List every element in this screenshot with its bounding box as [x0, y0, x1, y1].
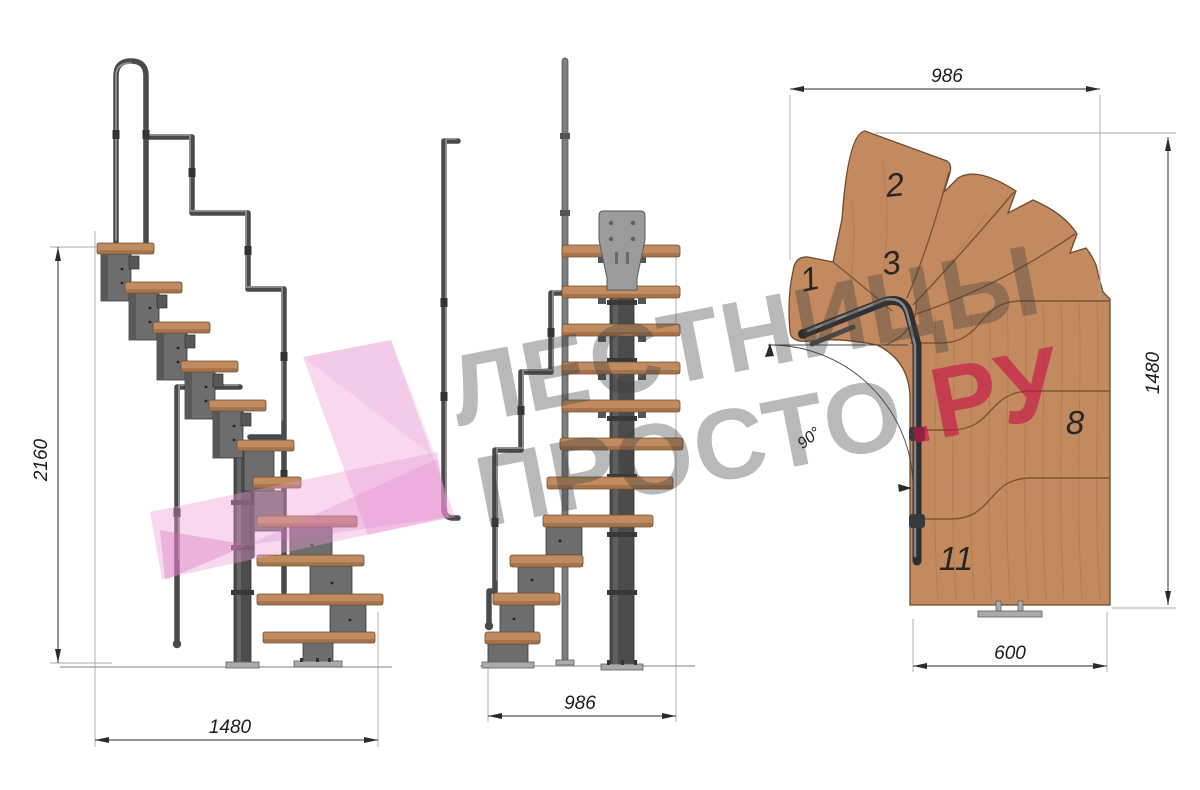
plan-depth-dimension: 1480 [1143, 137, 1171, 605]
front-mounting-plate [599, 211, 645, 290]
plan-width-dimension-label: 986 [931, 66, 963, 87]
staircase-technical-drawing: 2160 1480 [0, 0, 1200, 790]
tread-number-11: 11 [939, 540, 973, 577]
side-height-dimension-label: 2160 [31, 438, 52, 482]
plan-width-dimension: 986 [790, 66, 1100, 92]
side-height-dimension: 2160 [31, 247, 61, 663]
plan-tread-width-dimension-label: 600 [994, 643, 1026, 664]
drawing-canvas: 2160 1480 [0, 0, 1200, 790]
front-width-dimension: 986 [488, 693, 676, 719]
plan-depth-dimension-label: 1480 [1143, 351, 1164, 394]
plan-tread-width-dimension: 600 [913, 643, 1107, 669]
side-width-dimension-label: 1480 [209, 717, 252, 738]
tread-number-2: 2 [883, 165, 906, 204]
side-width-dimension: 1480 [95, 717, 378, 743]
front-width-dimension-label: 986 [564, 693, 596, 714]
